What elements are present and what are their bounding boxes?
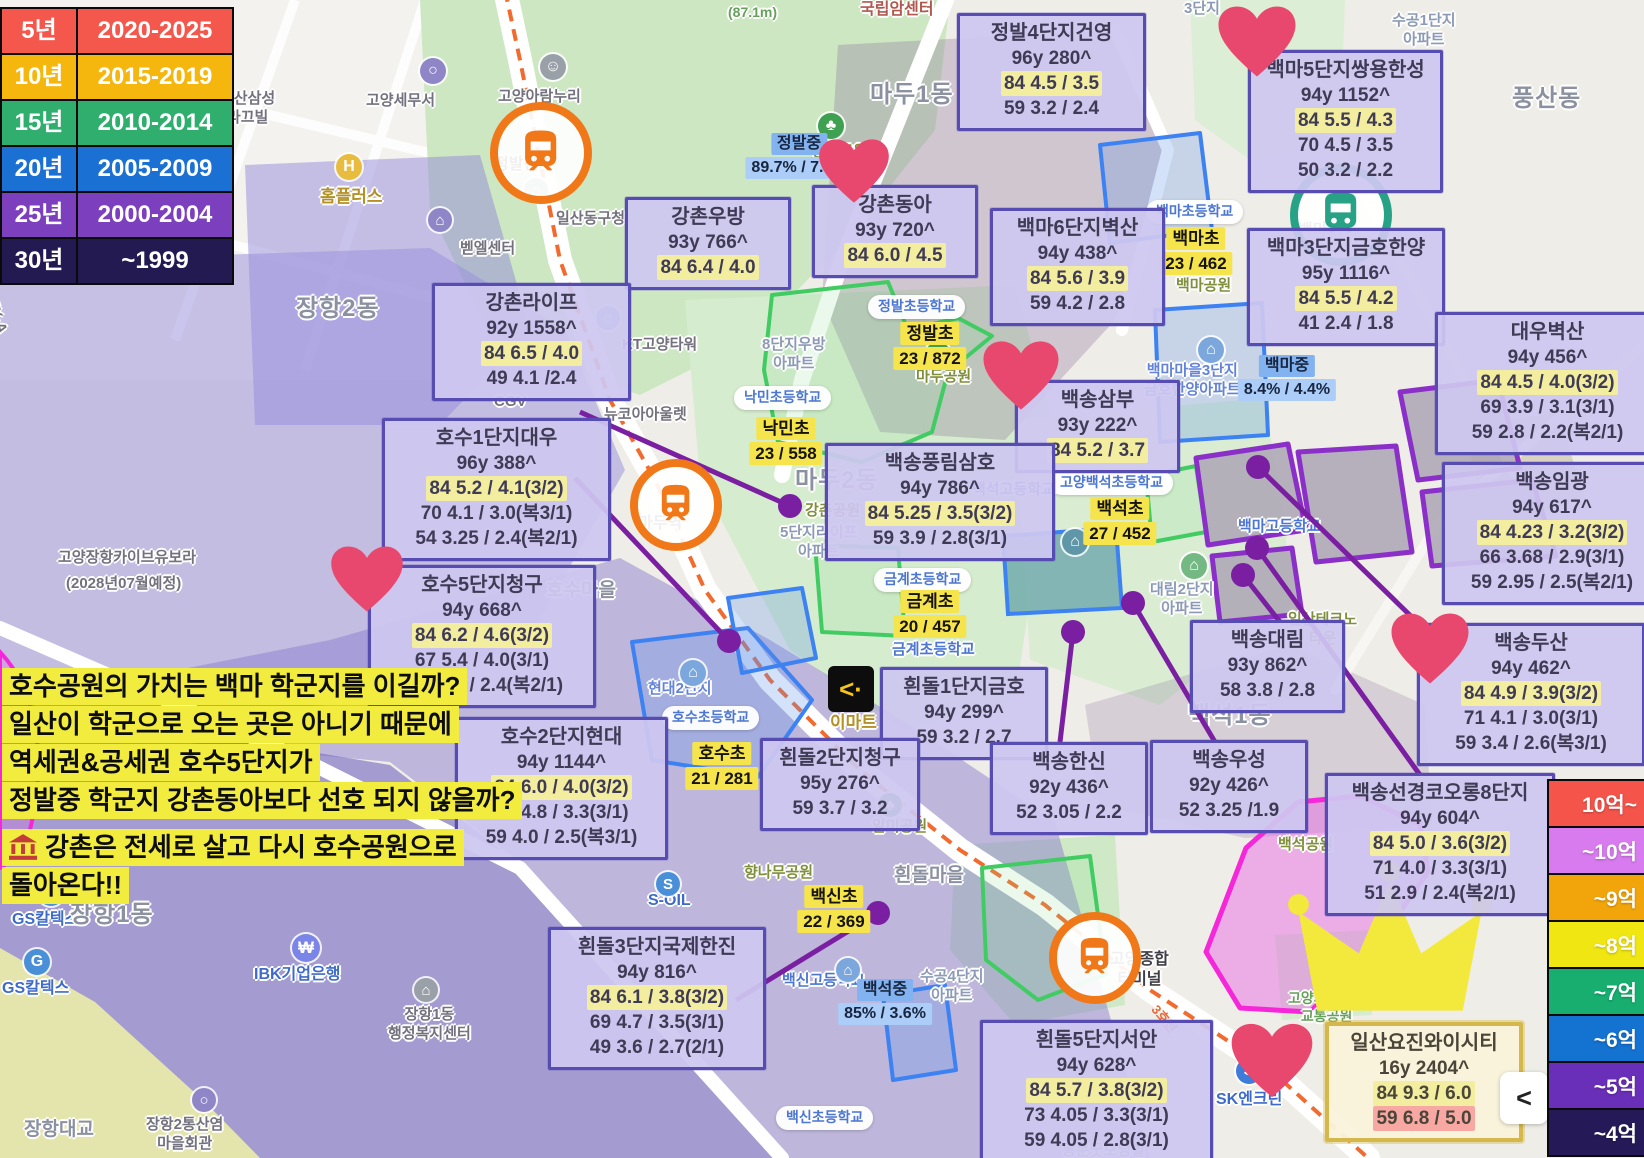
age-years-label: 5년 [2, 9, 78, 53]
age-years-label: 20년 [2, 147, 78, 191]
age-years-label: 25년 [2, 193, 78, 237]
heart-icon [1388, 610, 1472, 692]
commentary-text: 호수공원의 가치는 백마 학군지를 이길까? [9, 670, 460, 702]
age-range-label: 2015-2019 [78, 63, 232, 91]
hearts-layer [0, 0, 1644, 1158]
price-legend-row: ~5억 [1549, 1063, 1644, 1110]
age-range-label: ~1999 [78, 247, 232, 275]
age-range-label: 2020-2025 [78, 17, 232, 45]
commentary-line: 강촌은 전세로 살고 다시 호수공원으로 [2, 829, 464, 866]
age-range-label: 2010-2014 [78, 109, 232, 137]
commentary-line: 역세권&공세권 호수5단지가 [2, 744, 320, 781]
heart-icon [328, 543, 406, 620]
bank-icon [9, 834, 37, 860]
price-legend-row: ~10억 [1549, 828, 1644, 875]
age-legend-row: 10년2015-2019 [2, 55, 232, 101]
price-legend-row: ~9억 [1549, 875, 1644, 922]
commentary-text: 일산이 학군으로 오는 곳은 아니기 때문에 [9, 708, 452, 740]
price-legend-row: 10억~ [1549, 781, 1644, 828]
commentary-line: 돌아온다!! [2, 867, 129, 904]
heart-icon [816, 136, 892, 211]
commentary-line: 호수공원의 가치는 백마 학군지를 이길까? [2, 668, 467, 705]
commentary-text: 정발중 학군지 강촌동아보다 선호 되지 않을까? [9, 784, 515, 816]
commentary-text: 강촌은 전세로 살고 다시 호수공원으로 [45, 831, 457, 863]
age-legend-row: 20년2005-2009 [2, 147, 232, 193]
age-years-label: 15년 [2, 101, 78, 145]
building-age-legend: 5년2020-202510년2015-201915년2010-201420년20… [0, 7, 234, 285]
price-legend-row: ~8억 [1549, 922, 1644, 969]
collapse-button[interactable]: < [1500, 1072, 1548, 1124]
price-legend-row: ~6억 [1549, 1016, 1644, 1063]
commentary-note: 호수공원의 가치는 백마 학군지를 이길까?일산이 학군으로 오는 곳은 아니기… [2, 668, 522, 905]
heart-icon [980, 338, 1062, 418]
age-range-label: 2000-2004 [78, 201, 232, 229]
commentary-text: 역세권&공세권 호수5단지가 [9, 746, 313, 778]
heart-icon [1228, 1020, 1316, 1106]
commentary-text: 돌아온다!! [9, 869, 122, 901]
commentary-line: 일산이 학군으로 오는 곳은 아니기 때문에 [2, 706, 459, 743]
heart-icon [1215, 3, 1299, 85]
age-legend-row: 5년2020-2025 [2, 9, 232, 55]
map-canvas[interactable]: (87.1m)국립암센터마두1동풍산동수공1단지 아파트3단지고양세무서고양아람… [0, 0, 1644, 1158]
age-legend-row: 25년2000-2004 [2, 193, 232, 239]
age-years-label: 30년 [2, 239, 78, 283]
age-years-label: 10년 [2, 55, 78, 99]
age-legend-row: 30년~1999 [2, 239, 232, 283]
commentary-line: 정발중 학군지 강촌동아보다 선호 되지 않을까? [2, 782, 522, 819]
price-legend: 10억~~10억~9억~8억~7억~6억~5억~4억 [1547, 779, 1644, 1157]
price-legend-row: ~7억 [1549, 969, 1644, 1016]
age-legend-row: 15년2010-2014 [2, 101, 232, 147]
age-range-label: 2005-2009 [78, 155, 232, 183]
price-legend-row: ~4억 [1549, 1110, 1644, 1157]
